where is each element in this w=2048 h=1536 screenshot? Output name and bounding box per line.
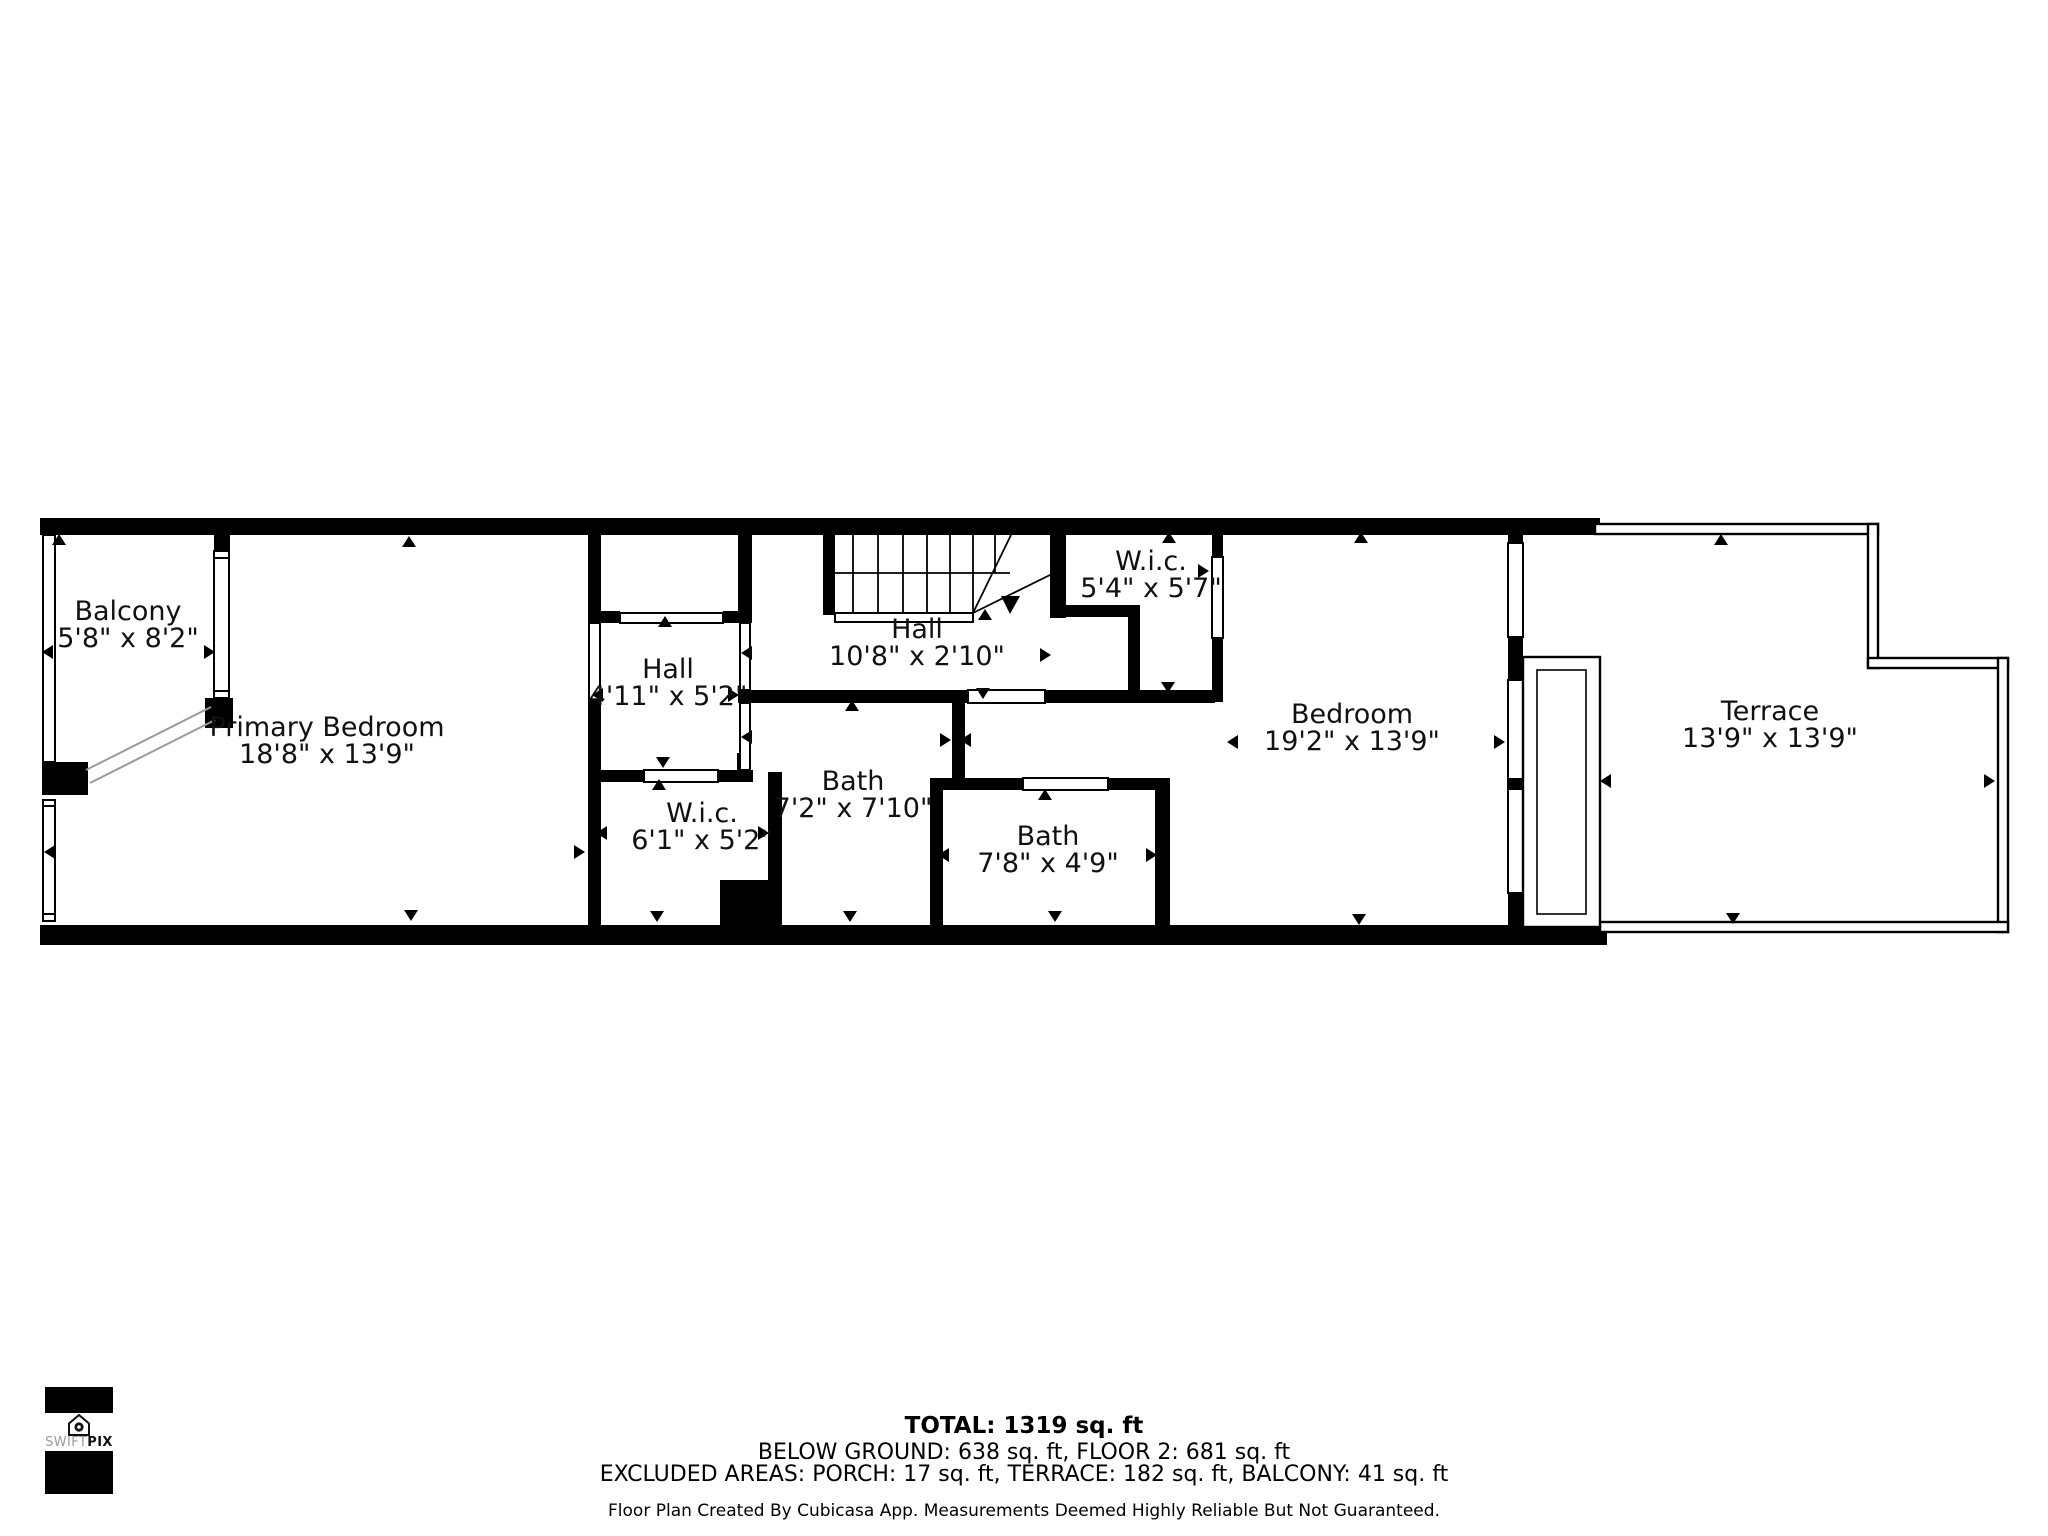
- room-dims: 5'8" x 8'2": [57, 625, 199, 652]
- window-divider: [1508, 778, 1523, 790]
- logo-text-bold: PIX: [87, 1435, 113, 1450]
- logo-text-light: SWIFT: [45, 1435, 87, 1450]
- room-label-bedroom: Bedroom 19'2" x 13'9": [1264, 701, 1440, 755]
- room-name: Bath: [774, 768, 933, 795]
- room-dims: 10'8" x 2'10": [829, 643, 1005, 670]
- room-name: Bath: [977, 823, 1119, 850]
- room-name: Bedroom: [1264, 701, 1440, 728]
- balcony-diagonal-rail: [86, 707, 215, 783]
- room-dims: 5'4" x 5'7": [1080, 575, 1222, 602]
- room-label-balcony: Balcony 5'8" x 8'2": [57, 598, 199, 652]
- room-dims: 7'8" x 4'9": [977, 850, 1119, 877]
- room-dims: 4'11" x 5'2": [589, 683, 748, 710]
- room-label-hall-small: Hall 4'11" x 5'2": [589, 656, 748, 710]
- room-name: W.i.c.: [631, 800, 773, 827]
- footer-disclaimer: Floor Plan Created By Cubicasa App. Meas…: [0, 1501, 2048, 1521]
- room-name: Terrace: [1682, 698, 1858, 725]
- floorplan-page: Balcony 5'8" x 8'2" Primary Bedroom 18'8…: [0, 0, 2048, 1536]
- room-label-bath-right: Bath 7'8" x 4'9": [977, 823, 1119, 877]
- room-name: Balcony: [57, 598, 199, 625]
- room-dims: 7'2" x 7'10": [774, 795, 933, 822]
- room-label-bath-center: Bath 7'2" x 7'10": [774, 768, 933, 822]
- room-name: Primary Bedroom: [209, 714, 444, 741]
- stair-direction-arrow: [1001, 596, 1020, 614]
- swiftpix-logo: SWIFTPIX: [45, 1387, 113, 1494]
- room-label-terrace: Terrace 13'9" x 13'9": [1682, 698, 1858, 752]
- room-dims: 18'8" x 13'9": [209, 741, 444, 768]
- logo-top-square: [45, 1387, 113, 1413]
- stairs: [835, 535, 1052, 613]
- room-dims: 13'9" x 13'9": [1682, 725, 1858, 752]
- house-camera-icon: [45, 1414, 113, 1436]
- room-dims: 6'1" x 5'2": [631, 827, 773, 854]
- footer-total: TOTAL: 1319 sq. ft: [0, 1413, 2048, 1439]
- footer-excluded: EXCLUDED AREAS: PORCH: 17 sq. ft, TERRAC…: [0, 1462, 2048, 1487]
- logo-bottom-square: [45, 1451, 113, 1494]
- room-label-wic-upper: W.i.c. 5'4" x 5'7": [1080, 548, 1222, 602]
- room-label-hall-corridor: Hall 10'8" x 2'10": [829, 616, 1005, 670]
- room-label-primary-bedroom: Primary Bedroom 18'8" x 13'9": [209, 714, 444, 768]
- room-dims: 19'2" x 13'9": [1264, 728, 1440, 755]
- room-name: Hall: [589, 656, 748, 683]
- room-label-wic-lower: W.i.c. 6'1" x 5'2": [631, 800, 773, 854]
- room-name: Hall: [829, 616, 1005, 643]
- logo-wordmark: SWIFTPIX: [45, 1436, 113, 1450]
- room-name: W.i.c.: [1080, 548, 1222, 575]
